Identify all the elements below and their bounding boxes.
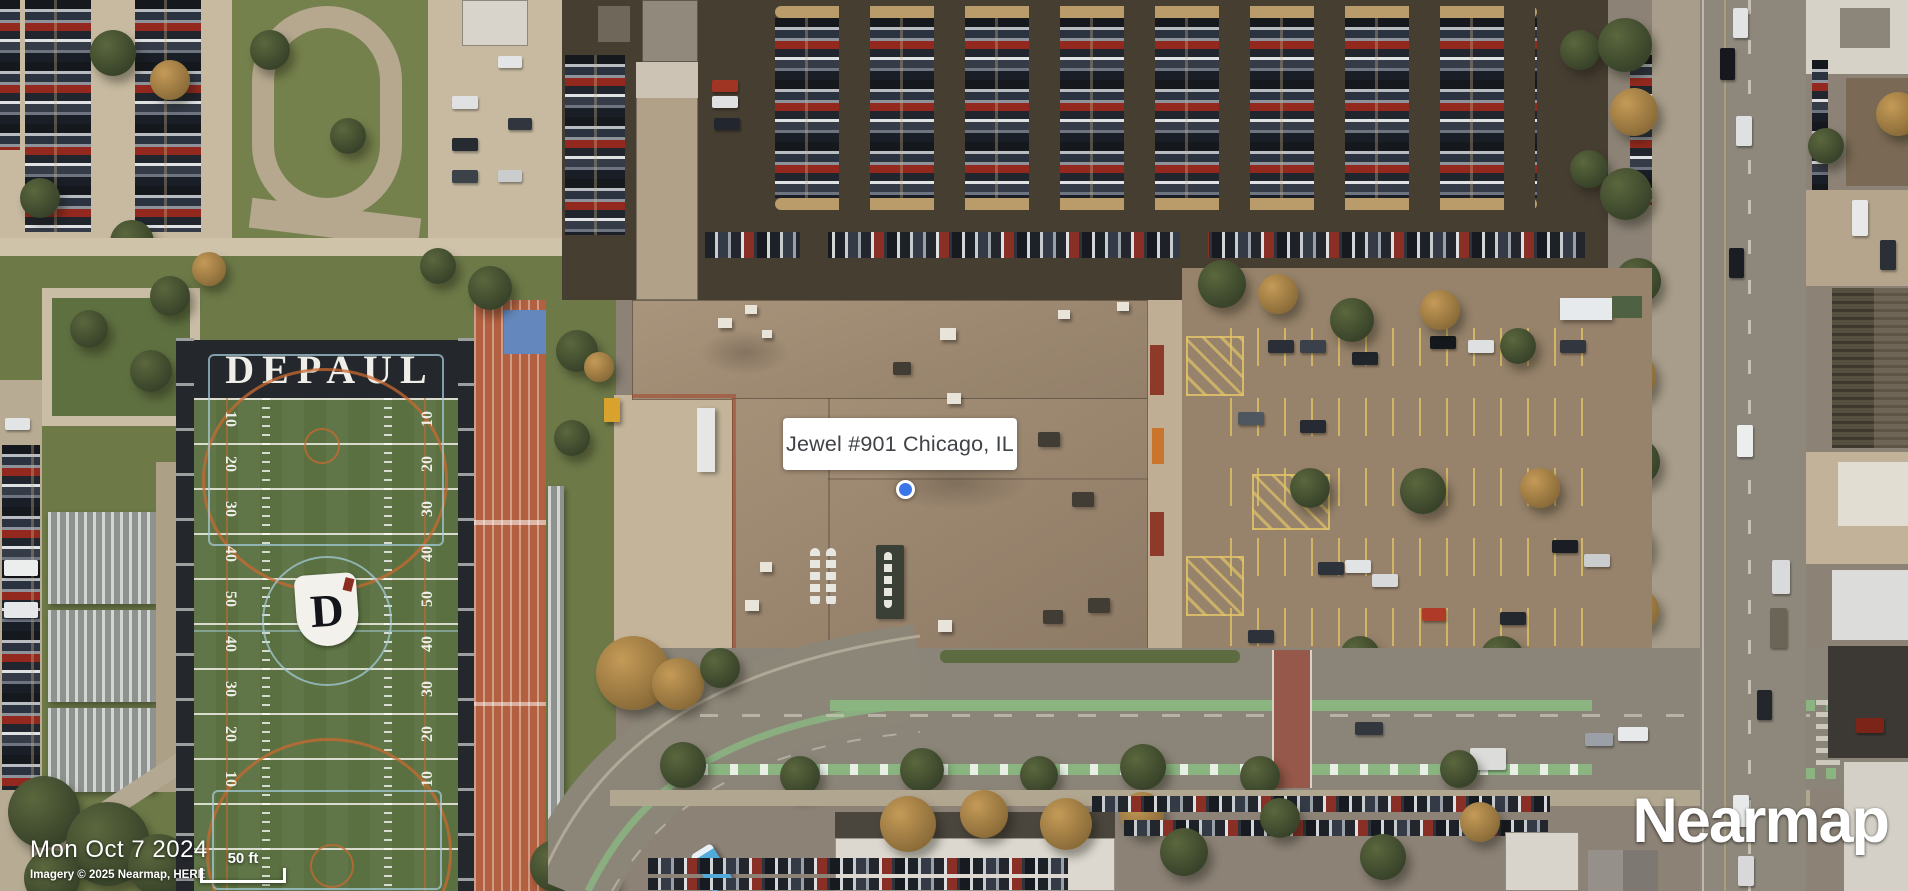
tree xyxy=(90,30,136,76)
sidewalk xyxy=(0,238,562,256)
tree xyxy=(192,252,226,286)
rooftop-unit xyxy=(940,328,956,340)
parked-car-row xyxy=(565,55,625,235)
yard-number: 20 xyxy=(419,453,437,475)
parking-stall-lines xyxy=(1230,538,1596,576)
building xyxy=(462,0,528,46)
parked-car xyxy=(1268,340,1294,353)
landscape-island xyxy=(800,232,828,258)
parked-car xyxy=(1352,352,1378,365)
truck xyxy=(1770,608,1787,648)
parked-car xyxy=(1345,560,1371,573)
yard-number: 30 xyxy=(419,498,437,520)
rooftop-unit xyxy=(1117,302,1129,311)
tree xyxy=(20,178,60,218)
tree xyxy=(150,60,190,100)
brand-watermark: Nearmap xyxy=(1632,790,1888,853)
marker-dot[interactable] xyxy=(896,480,915,499)
tree xyxy=(554,420,590,456)
rooftop-unit xyxy=(938,620,952,632)
rooftop-unit xyxy=(745,600,759,611)
yard-number: 10 xyxy=(419,408,437,430)
tree xyxy=(330,118,366,154)
sidewalk xyxy=(1652,0,1700,648)
tree xyxy=(1500,328,1536,364)
stadium-bleachers xyxy=(48,610,156,702)
canopy-green xyxy=(1612,296,1642,318)
yard-number: 10 xyxy=(419,768,437,790)
tree xyxy=(250,30,290,70)
tree xyxy=(1520,468,1560,508)
parked-car xyxy=(1422,608,1446,621)
building xyxy=(1838,462,1908,526)
tree xyxy=(1260,798,1300,838)
tree xyxy=(1560,30,1600,70)
yard-number: 40 xyxy=(221,633,239,655)
blue-tarp xyxy=(504,310,546,354)
parked-car xyxy=(1372,574,1398,587)
parked-car xyxy=(498,56,522,68)
rooftop-unit xyxy=(760,562,772,572)
rooftop-unit xyxy=(947,393,961,404)
parked-car xyxy=(1856,718,1884,733)
tree xyxy=(1610,88,1658,136)
yard-number: 10 xyxy=(221,768,239,790)
driving-car xyxy=(1736,116,1752,146)
building xyxy=(1832,570,1908,640)
tree xyxy=(1400,468,1446,514)
rooftop-unit xyxy=(762,330,772,338)
parked-car xyxy=(1584,554,1610,567)
parked-car xyxy=(1500,612,1526,625)
tree xyxy=(1360,834,1406,880)
parking-stall-lines xyxy=(1230,398,1596,436)
yard-number: 50 xyxy=(419,588,437,610)
yard-number: 50 xyxy=(221,588,239,610)
tree xyxy=(1598,18,1652,72)
vent-dots xyxy=(826,548,836,606)
landscape-islands xyxy=(775,198,1537,210)
imagery-attribution: Imagery © 2025 Nearmap, HERE xyxy=(30,869,205,881)
rooftop-vent xyxy=(1088,598,1110,613)
parked-car xyxy=(712,80,738,92)
parked-car-row xyxy=(705,232,1585,258)
building xyxy=(642,0,698,62)
landscape-island xyxy=(1180,232,1208,258)
tree xyxy=(420,248,456,284)
parked-car xyxy=(452,170,478,183)
landscape-islands xyxy=(775,6,1537,18)
parked-car xyxy=(1552,540,1578,553)
tree xyxy=(1460,802,1500,842)
parked-van xyxy=(4,560,38,576)
building xyxy=(1828,646,1908,758)
tree xyxy=(1040,798,1092,850)
hatched-zone xyxy=(1186,336,1244,396)
building xyxy=(1874,288,1908,448)
parked-car-row xyxy=(648,858,1068,874)
driving-car xyxy=(1618,727,1648,741)
rooftop-unit xyxy=(718,318,732,328)
tree xyxy=(468,266,512,310)
parked-car xyxy=(1560,340,1586,353)
parked-car-row xyxy=(135,0,201,232)
lacrosse-box xyxy=(208,354,444,546)
bike-lane xyxy=(830,700,1592,711)
aerial-imagery-canvas[interactable]: DEPAUL D 10 20 30 40 50 40 30 20 10 10 2… xyxy=(0,0,1908,891)
place-marker-label[interactable]: Jewel #901 Chicago, IL xyxy=(783,418,1017,470)
orange-lift xyxy=(1152,428,1164,464)
parked-car xyxy=(508,118,532,130)
tree xyxy=(1020,756,1058,794)
rooftop-unit xyxy=(1058,310,1070,319)
driving-car xyxy=(1737,425,1753,457)
parked-car xyxy=(452,138,478,151)
tree xyxy=(130,350,172,392)
parked-car xyxy=(1468,340,1494,353)
place-label-text: Jewel #901 Chicago, IL xyxy=(786,432,1014,457)
parked-car xyxy=(712,96,738,108)
track-marking xyxy=(474,520,546,525)
rooftop-vent xyxy=(1043,610,1063,624)
scale-bar-label: 50 ft xyxy=(200,850,286,867)
yard-number: 30 xyxy=(419,678,437,700)
tree xyxy=(70,310,108,348)
yard-number: 40 xyxy=(221,543,239,565)
parked-car xyxy=(498,170,522,182)
tree xyxy=(652,658,704,710)
street-lane-line xyxy=(1724,0,1726,891)
parked-van xyxy=(4,602,38,618)
roof-parapet xyxy=(632,394,736,398)
scale-bar: 50 ft xyxy=(200,850,286,883)
tree xyxy=(1330,298,1374,342)
yard-number: 40 xyxy=(419,543,437,565)
awning-red xyxy=(1150,512,1164,556)
hatched-zone xyxy=(1186,556,1244,616)
street-edge-line xyxy=(1702,0,1704,891)
parked-car xyxy=(452,96,478,109)
rooftop-vent xyxy=(893,362,911,375)
building xyxy=(1505,832,1579,891)
capture-date-label: Mon Oct 7 2024 xyxy=(30,836,208,864)
parked-car xyxy=(1300,340,1326,353)
driving-car xyxy=(1757,690,1772,720)
yard-number: 20 xyxy=(419,723,437,745)
parked-car xyxy=(714,118,740,130)
building-roof-unit xyxy=(1840,8,1890,48)
driving-car xyxy=(1585,733,1613,746)
parked-car xyxy=(1318,562,1344,575)
parking-stall-lines xyxy=(1230,608,1596,646)
tree xyxy=(150,276,190,316)
driving-car xyxy=(1733,8,1748,38)
field-sideline-left xyxy=(176,338,194,891)
yard-number: 20 xyxy=(221,723,239,745)
parked-car xyxy=(1880,240,1896,270)
yard-number: 30 xyxy=(221,678,239,700)
rooftop-unit xyxy=(745,305,757,314)
driving-car xyxy=(1729,248,1744,278)
hedge xyxy=(940,650,1240,663)
tree xyxy=(1600,168,1652,220)
driving-car xyxy=(1738,856,1754,886)
parked-van xyxy=(1852,200,1868,236)
monument xyxy=(598,6,630,42)
tree xyxy=(880,796,936,852)
parked-car-row xyxy=(0,0,20,150)
parking-rows xyxy=(775,18,1537,198)
stadium-bleachers xyxy=(48,512,156,604)
driving-car xyxy=(1772,560,1790,594)
tree xyxy=(660,742,706,788)
tree xyxy=(1258,274,1298,314)
parked-car-row xyxy=(648,878,1068,890)
vent-dots xyxy=(810,548,820,606)
awning-red xyxy=(1150,345,1164,395)
rooftop-vent xyxy=(1038,432,1060,447)
tree xyxy=(960,790,1008,838)
building xyxy=(1588,850,1658,891)
excavator xyxy=(604,398,620,422)
roof-stain xyxy=(700,330,790,375)
tree xyxy=(700,648,740,688)
parked-car xyxy=(1430,336,1456,349)
parked-car xyxy=(1238,412,1264,425)
tree xyxy=(1120,744,1166,790)
box-truck xyxy=(1560,298,1612,320)
running-track xyxy=(474,300,546,891)
driving-car xyxy=(1355,722,1383,735)
truck-trailer xyxy=(697,408,715,472)
parked-car xyxy=(1300,420,1326,433)
tree xyxy=(1290,468,1330,508)
scale-bar-bracket xyxy=(200,868,286,883)
tree xyxy=(1440,750,1478,788)
yard-number: 30 xyxy=(221,498,239,520)
tree xyxy=(584,352,614,382)
yard-number: 20 xyxy=(221,453,239,475)
tree xyxy=(900,748,944,792)
logo-letter: D xyxy=(309,582,346,637)
rooftop-vent xyxy=(1072,492,1094,507)
street xyxy=(1700,0,1806,891)
tree xyxy=(1420,290,1460,330)
tree xyxy=(1160,828,1208,876)
tree xyxy=(1198,260,1246,308)
vent-dots xyxy=(884,552,892,608)
parked-car xyxy=(1248,630,1274,643)
yard-number: 40 xyxy=(419,633,437,655)
building-roof-cap xyxy=(636,62,698,98)
track-marking xyxy=(474,702,546,706)
tree xyxy=(1808,128,1844,164)
yard-number: 10 xyxy=(221,408,239,430)
parked-car xyxy=(5,418,30,430)
driving-car xyxy=(1720,48,1735,80)
